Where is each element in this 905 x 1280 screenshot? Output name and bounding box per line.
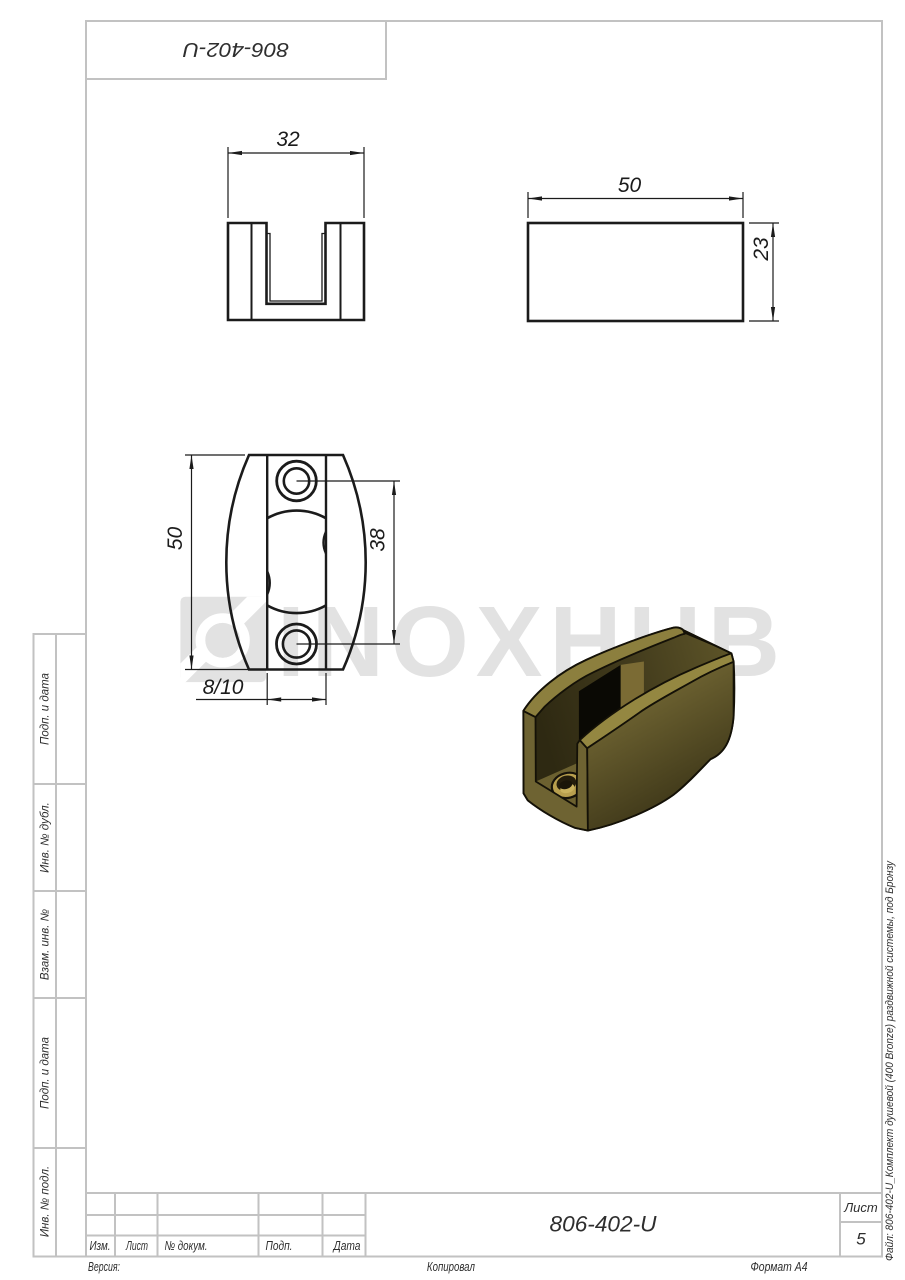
svg-text:50: 50 bbox=[164, 527, 187, 551]
svg-text:806-402-U: 806-402-U bbox=[550, 1212, 657, 1237]
svg-text:Файл: 806-402-U_Комплект душев: Файл: 806-402-U_Комплект душевой (400 Br… bbox=[884, 860, 896, 1261]
svg-text:23: 23 bbox=[750, 237, 773, 262]
svg-text:Инв. № дубл.: Инв. № дубл. bbox=[40, 802, 52, 873]
svg-text:Дата: Дата bbox=[332, 1238, 361, 1253]
svg-text:Подп. и дата: Подп. и дата bbox=[40, 1037, 52, 1109]
svg-text:32: 32 bbox=[276, 128, 300, 151]
svg-text:50: 50 bbox=[618, 174, 642, 197]
svg-text:8/10: 8/10 bbox=[203, 676, 244, 699]
svg-text:Изм.: Изм. bbox=[90, 1238, 111, 1253]
svg-text:5: 5 bbox=[856, 1230, 866, 1249]
svg-text:38: 38 bbox=[367, 528, 390, 552]
svg-text:Копировал: Копировал bbox=[427, 1259, 475, 1274]
svg-text:Лист: Лист bbox=[843, 1200, 878, 1215]
svg-text:Инв. № подл.: Инв. № подл. bbox=[40, 1166, 52, 1237]
svg-text:Подп.: Подп. bbox=[266, 1238, 293, 1253]
svg-text:Версия:: Версия: bbox=[88, 1259, 120, 1274]
svg-text:№ докум.: № докум. bbox=[165, 1238, 208, 1253]
svg-text:Лист: Лист bbox=[125, 1238, 148, 1253]
svg-text:Взам. инв. №: Взам. инв. № bbox=[40, 908, 52, 980]
svg-text:Формат А4: Формат А4 bbox=[751, 1259, 808, 1274]
svg-text:Подп. и дата: Подп. и дата bbox=[40, 673, 52, 745]
svg-text:806-402-U: 806-402-U bbox=[183, 38, 289, 61]
